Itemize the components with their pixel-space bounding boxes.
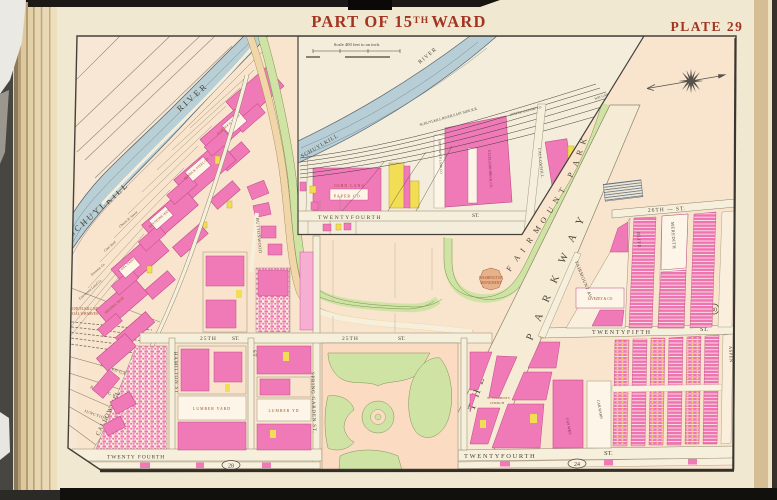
svg-text:ST.: ST. [398,336,406,342]
svg-text:ST.: ST. [232,336,240,342]
svg-text:MONUMENT: MONUMENT [480,281,502,285]
svg-text:ST: ST [251,350,256,358]
svg-text:COAL WHARVES: COAL WHARVES [70,312,98,316]
svg-text:25TH: 25TH [342,336,359,342]
svg-text:LUMBER YD: LUMBER YD [268,409,299,413]
svg-text:TWENTYFIFTH: TWENTYFIFTH [592,330,652,336]
svg-text:24: 24 [574,462,580,468]
svg-text:PART OF 15THWARD: PART OF 15THWARD [311,12,486,31]
svg-text:Scale 400 feet to an inch.: Scale 400 feet to an inch. [334,42,380,47]
svg-text:ST.: ST. [604,450,613,457]
svg-text:28: 28 [228,464,234,470]
svg-text:ST.: ST. [700,327,709,333]
svg-text:CHURCH: CHURCH [490,401,505,405]
svg-text:TWENTYFOURTH: TWENTYFOURTH [464,453,536,460]
svg-text:TWENTY FOURTH: TWENTY FOURTH [107,455,165,461]
svg-text:WASHINGTON: WASHINGTON [479,276,503,280]
svg-text:25TH: 25TH [200,336,217,342]
svg-text:LUMBER YARD: LUMBER YARD [193,407,231,411]
svg-text:PAPER CO.: PAPER CO. [334,194,363,199]
svg-text:ST.: ST. [472,213,480,219]
svg-text:TWENTYFOURTH: TWENTYFOURTH [318,215,382,221]
svg-text:JOHN LANG: JOHN LANG [334,183,365,188]
svg-text:PLATE 29: PLATE 29 [671,19,744,34]
